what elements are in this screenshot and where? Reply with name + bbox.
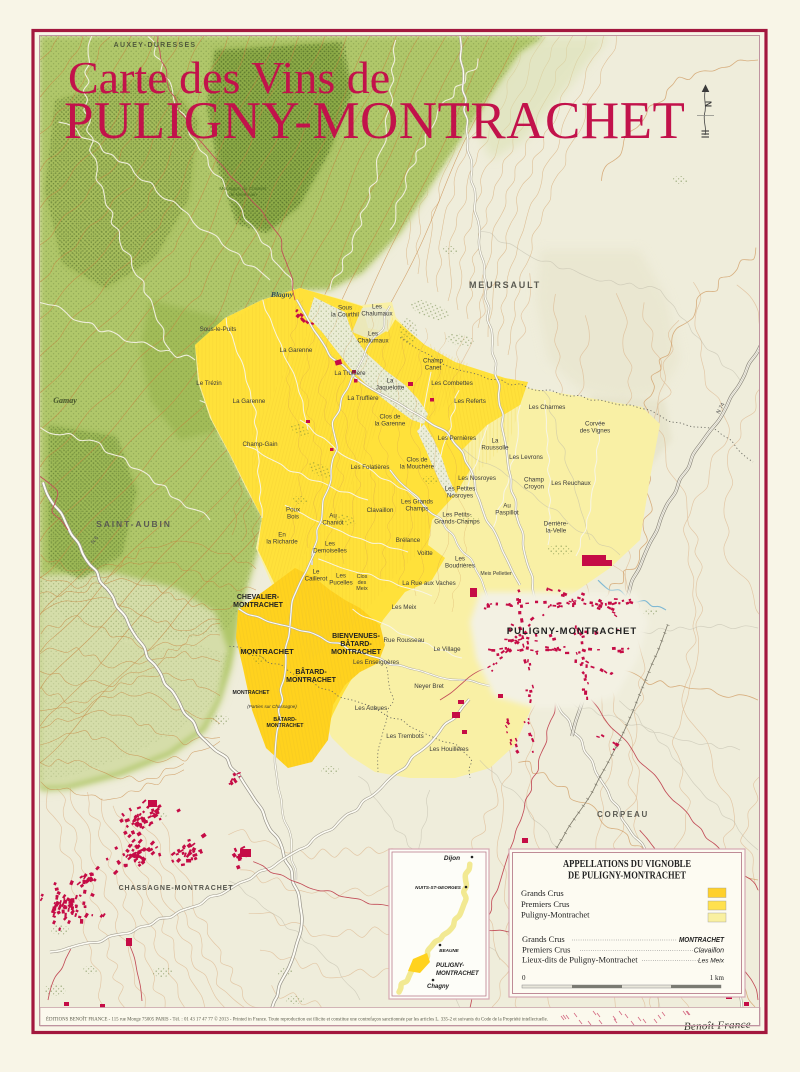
svg-text:PULIGNY-: PULIGNY- (436, 963, 464, 969)
svg-text:MONTRACHET: MONTRACHET (240, 647, 294, 656)
svg-text:Grands Crus: Grands Crus (521, 888, 564, 898)
svg-text:Les Charmes: Les Charmes (529, 404, 566, 411)
svg-text:ÉDITIONS BENOÎT FRANCE - 115 r: ÉDITIONS BENOÎT FRANCE - 115 rue Monge 7… (46, 1015, 548, 1023)
svg-text:Blagny: Blagny (270, 290, 294, 299)
svg-text:Puligny-Montrachet: Puligny-Montrachet (521, 910, 590, 920)
svg-text:Les Reuchaux: Les Reuchaux (551, 480, 591, 487)
svg-text:Clavaillon: Clavaillon (694, 948, 724, 955)
svg-text:Dijon: Dijon (444, 855, 460, 862)
svg-text:Les Enseignères: Les Enseignères (353, 659, 399, 666)
svg-text:Grands Crus: Grands Crus (522, 934, 565, 944)
svg-text:NUITS-ST-GEORGES: NUITS-ST-GEORGES (415, 885, 462, 890)
svg-text:Les Nosroyes: Les Nosroyes (458, 475, 496, 482)
svg-text:MEURSAULT: MEURSAULT (469, 280, 541, 290)
svg-text:Gamay: Gamay (53, 396, 77, 405)
svg-text:MONTRACHET: MONTRACHET (679, 935, 725, 944)
svg-text:Clavaillon: Clavaillon (367, 507, 394, 514)
svg-text:Les Aubues: Les Aubues (355, 705, 387, 712)
svg-text:CHEVALIER-MONTRACHET: CHEVALIER-MONTRACHET (233, 594, 283, 609)
svg-text:Chagny: Chagny (427, 984, 450, 990)
svg-text:CHASSAGNE-MONTRACHET: CHASSAGNE-MONTRACHET (119, 885, 234, 892)
svg-text:ClosdesMeix: ClosdesMeix (356, 574, 368, 592)
svg-text:Derrière-la-Velle: Derrière-la-Velle (544, 521, 568, 535)
svg-text:Les Referts: Les Referts (454, 398, 486, 405)
svg-text:Les PetitesNosroyes: Les PetitesNosroyes (445, 486, 476, 500)
svg-text:DE PULIGNY-MONTRACHET: DE PULIGNY-MONTRACHET (568, 871, 686, 882)
svg-text:Les Trembots: Les Trembots (386, 733, 423, 740)
svg-text:PULIGNY-MONTRACHET: PULIGNY-MONTRACHET (64, 92, 685, 150)
svg-text:AUXEY-DURESSES: AUXEY-DURESSES (114, 42, 197, 49)
svg-text:SAINT-AUBIN: SAINT-AUBIN (96, 519, 172, 529)
svg-text:Les Houillères: Les Houillères (429, 746, 468, 753)
svg-text:PULIGNY-MONTRACHET: PULIGNY-MONTRACHET (507, 626, 637, 637)
svg-text:BEAUNE: BEAUNE (439, 948, 459, 953)
svg-text:Voitte: Voitte (417, 550, 433, 557)
svg-text:Les Folatières: Les Folatières (351, 464, 390, 471)
svg-text:La Garenne: La Garenne (280, 347, 313, 354)
svg-text:Lieux-dits de Puligny-Montrach: Lieux-dits de Puligny-Montrachet (522, 955, 638, 965)
svg-text:Neyer Bret: Neyer Bret (414, 683, 444, 690)
svg-text:PouxBois: PouxBois (286, 507, 301, 521)
svg-text:Meix Pelletier: Meix Pelletier (480, 571, 511, 577)
svg-text:MONTRACHET: MONTRACHET (233, 690, 271, 696)
svg-text:Champ-Gain: Champ-Gain (242, 441, 278, 448)
svg-text:Premiers Crus: Premiers Crus (521, 899, 569, 909)
svg-text:La Truffière: La Truffière (347, 395, 379, 402)
svg-text:Les Meix: Les Meix (698, 958, 725, 965)
svg-text:La Garenne: La Garenne (233, 398, 266, 405)
svg-text:Rue Rousseau: Rue Rousseau (384, 637, 425, 644)
svg-text:ChampCanet: ChampCanet (423, 358, 444, 372)
svg-text:N: N (704, 101, 714, 107)
svg-text:MONTRACHET: MONTRACHET (436, 971, 480, 977)
svg-text:Les Levrons: Les Levrons (509, 454, 543, 461)
svg-text:0: 0 (522, 974, 526, 982)
svg-text:La Truffière: La Truffière (334, 370, 366, 377)
svg-text:Le Village: Le Village (433, 646, 461, 653)
svg-text:Le Trézin: Le Trézin (196, 380, 222, 387)
svg-text:ChampCroyon: ChampCroyon (524, 477, 545, 491)
svg-text:(Parties sur Chassagne): (Parties sur Chassagne) (247, 704, 297, 709)
svg-text:Brélance: Brélance (396, 537, 421, 544)
svg-text:APPELLATIONS DU VIGNOBLE: APPELLATIONS DU VIGNOBLE (563, 859, 691, 870)
svg-text:Premiers Crus: Premiers Crus (522, 945, 570, 955)
svg-text:Les GrandsChamps: Les GrandsChamps (401, 499, 433, 513)
svg-text:CORPEAU: CORPEAU (597, 810, 649, 819)
svg-text:Les Meix: Les Meix (392, 604, 418, 611)
svg-text:1 km: 1 km (710, 974, 725, 982)
svg-text:Les Pernières: Les Pernières (438, 435, 476, 442)
svg-text:La Rue aux Vaches: La Rue aux Vaches (402, 580, 456, 587)
svg-text:Sous-le-Puits: Sous-le-Puits (200, 326, 237, 333)
svg-text:Les Combettes: Les Combettes (431, 380, 473, 387)
